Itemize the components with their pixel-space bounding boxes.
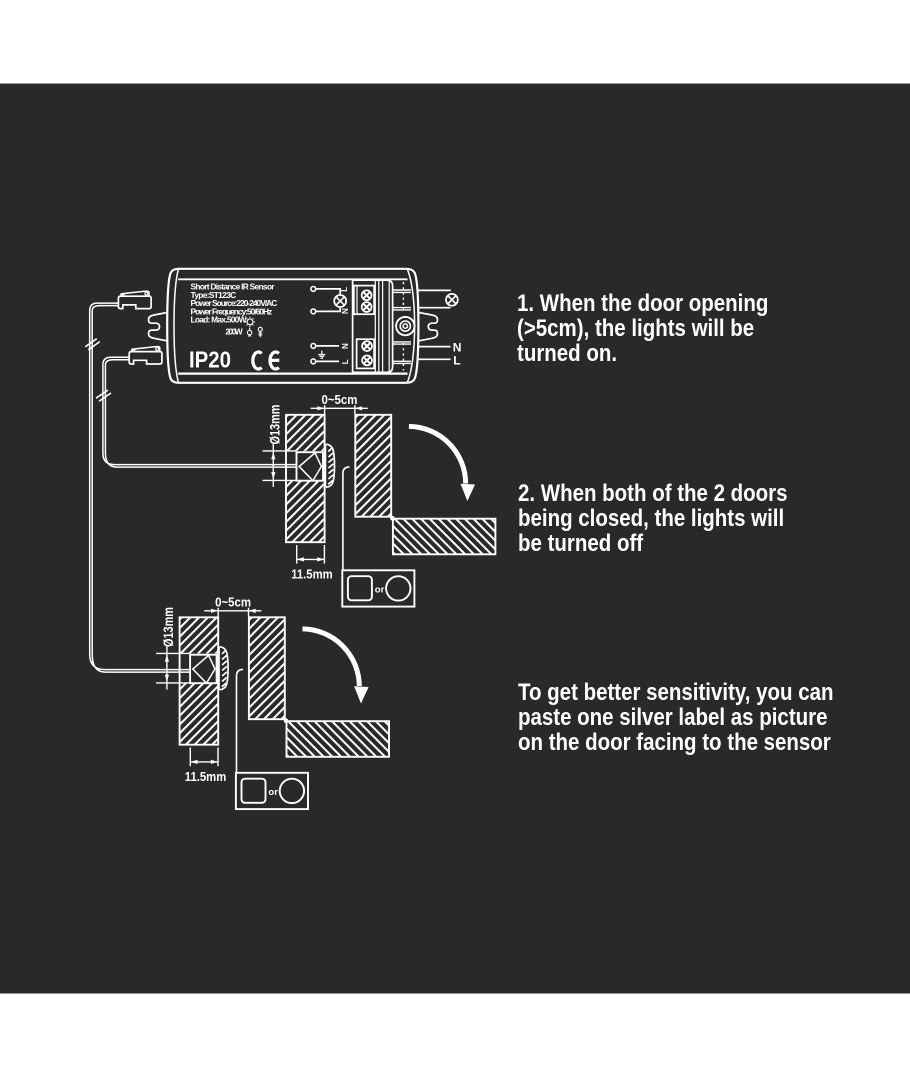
svg-text:L: L	[340, 287, 349, 292]
svg-text:200W: 200W	[225, 327, 242, 337]
svg-text:IP20: IP20	[189, 347, 231, 373]
svg-text:Load: Max.500W: Load: Max.500W	[191, 315, 247, 325]
svg-text:L: L	[453, 353, 460, 367]
svg-text:N: N	[341, 308, 350, 314]
svg-text:N: N	[341, 343, 350, 349]
svg-text:L: L	[341, 359, 350, 364]
